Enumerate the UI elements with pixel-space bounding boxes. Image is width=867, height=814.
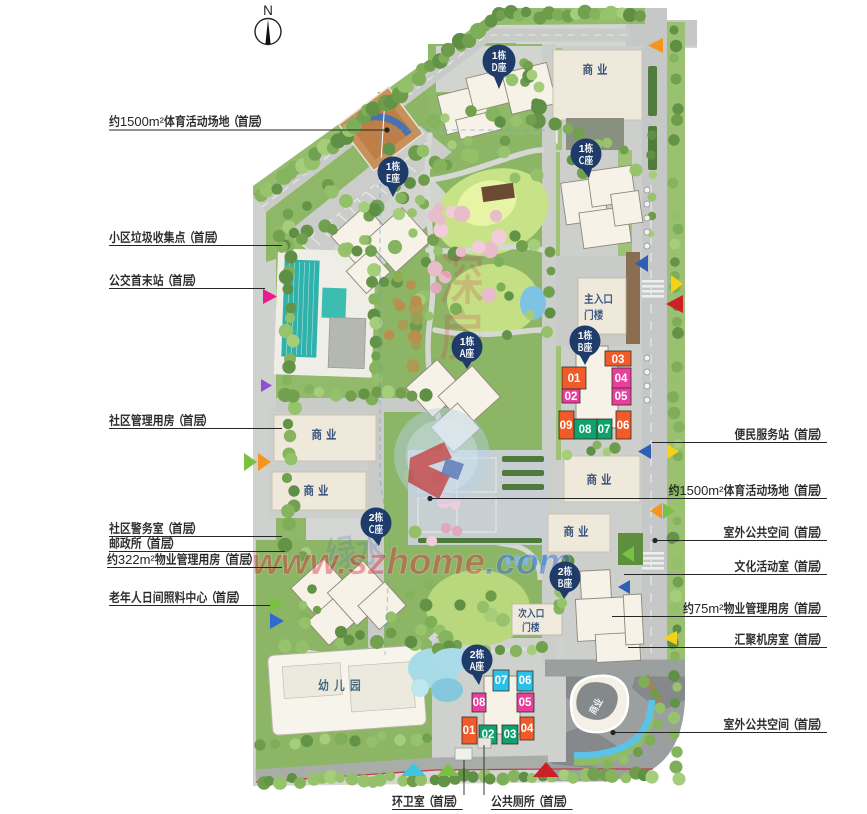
svg-text:06: 06 — [617, 420, 630, 432]
svg-text:322m²: 322m² — [118, 552, 156, 567]
svg-text:75m²: 75m² — [694, 601, 724, 616]
svg-text:1: 1 — [578, 330, 584, 342]
svg-text:07: 07 — [598, 424, 611, 436]
svg-text:2: 2 — [470, 649, 476, 661]
svg-text:2: 2 — [558, 566, 564, 578]
svg-text:05: 05 — [615, 391, 628, 403]
svg-text:N: N — [263, 3, 273, 18]
svg-text:04: 04 — [521, 723, 534, 735]
svg-text:03: 03 — [612, 354, 625, 366]
svg-text:09: 09 — [560, 420, 573, 432]
svg-text:05: 05 — [519, 697, 532, 709]
svg-text:1: 1 — [579, 143, 585, 155]
svg-text:1: 1 — [492, 50, 498, 62]
svg-text:1: 1 — [386, 161, 392, 173]
svg-text:www.szhome.com: www.szhome.com — [252, 541, 571, 582]
svg-text:06: 06 — [519, 675, 532, 687]
svg-text:03: 03 — [504, 729, 517, 741]
svg-text:01: 01 — [463, 725, 476, 737]
svg-text:08: 08 — [473, 697, 486, 709]
svg-text:04: 04 — [615, 373, 628, 385]
svg-text:1500m²: 1500m² — [120, 114, 165, 129]
svg-text:08: 08 — [579, 424, 592, 436]
svg-text:02: 02 — [565, 391, 578, 403]
svg-text:07: 07 — [495, 675, 508, 687]
svg-text:01: 01 — [568, 373, 581, 385]
svg-text:1: 1 — [460, 336, 466, 348]
svg-text:2: 2 — [369, 512, 375, 524]
svg-text:1500m²: 1500m² — [679, 483, 724, 498]
